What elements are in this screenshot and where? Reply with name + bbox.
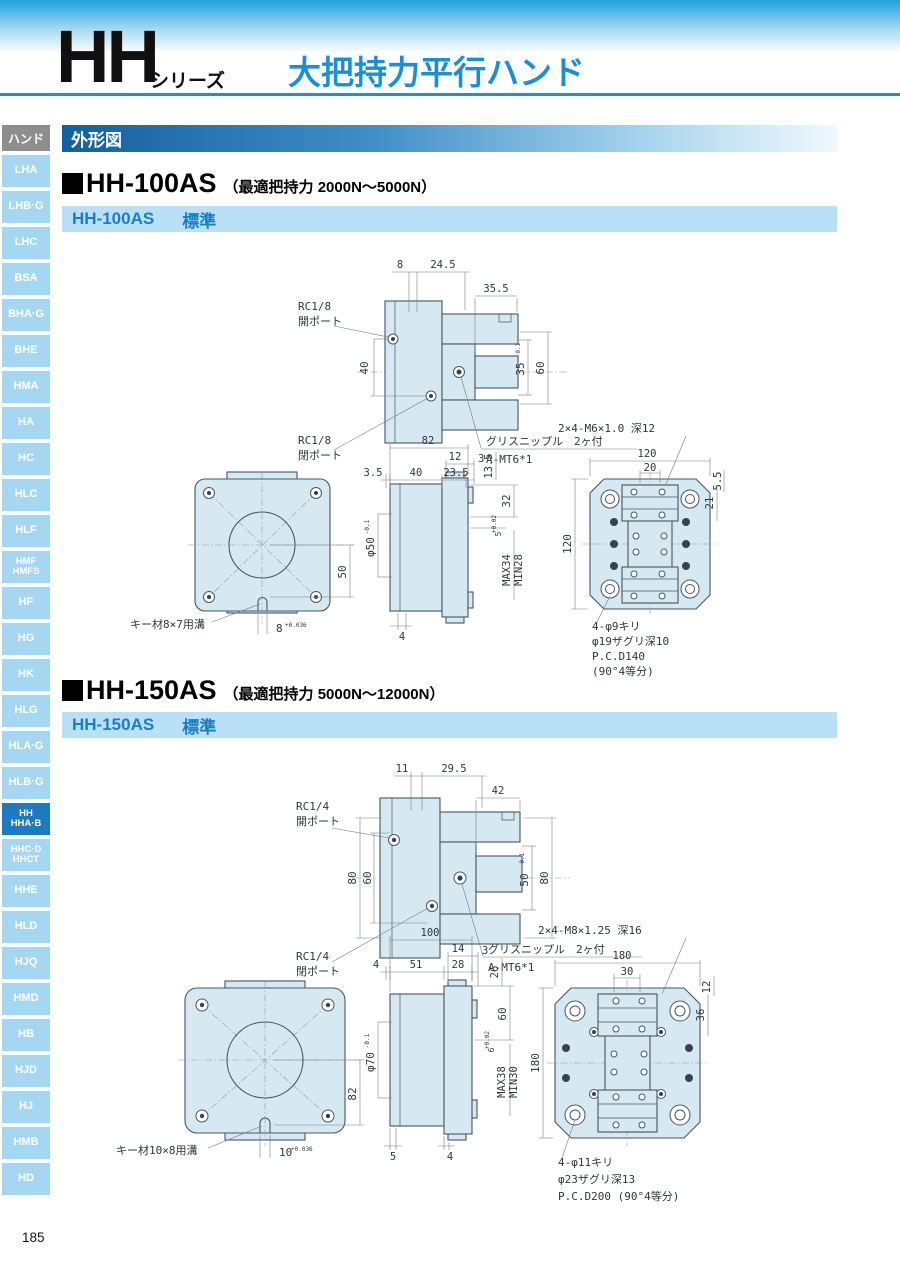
sidebar-item-bhe[interactable]: BHE [2, 335, 50, 367]
dim-label: 80 [538, 871, 551, 884]
dim-label: 24.5 [430, 259, 455, 271]
series-suffix: シリーズ [150, 66, 225, 93]
port-label: RC1/4 [296, 800, 329, 813]
header-rule [0, 93, 900, 96]
hh150as-outline-drawing: 11 29.5 42 80 60 50 -0.1 80 RC1/4 開ポート R… [62, 748, 900, 1223]
sidebar-item-hla·g[interactable]: HLA·G [2, 731, 50, 763]
dim-tolerance: +0.02 [491, 515, 498, 533]
dim-label: 4 [399, 631, 405, 643]
sidebar-item-hj[interactable]: HJ [2, 1091, 50, 1123]
sidebar-item-hhe[interactable]: HHE [2, 875, 50, 907]
sidebar-item-hh[interactable]: HHHHA·B [2, 803, 50, 835]
dim-label: 120 [638, 448, 657, 460]
sidebar-item-hmd[interactable]: HMD [2, 983, 50, 1015]
page-number: 185 [22, 1230, 45, 1245]
sidebar-item-hmb[interactable]: HMB [2, 1127, 50, 1159]
dim-label: 3.5 [364, 467, 383, 479]
product-heading-hh150as: HH-150AS （最適把持力 5000N〜12000N） [62, 675, 444, 706]
type-label: 標準 [182, 207, 216, 232]
dim-label: 29.5 [441, 763, 466, 775]
sidebar-item-hf[interactable]: HF [2, 587, 50, 619]
dim-tolerance: -0.1 [364, 519, 371, 534]
dim-label: 14 [452, 943, 465, 955]
dim-label: 60 [496, 1007, 509, 1020]
sidebar-item-hjq[interactable]: HJQ [2, 947, 50, 979]
dim-label: 26 [489, 966, 501, 979]
dim-label: 40 [358, 361, 371, 374]
sidebar-item-hlc[interactable]: HLC [2, 479, 50, 511]
dim-label: 12 [701, 981, 713, 994]
grease-nipple-label: グリスニップル 2ヶ付 [486, 434, 603, 448]
hole-note: P.C.D140 [592, 650, 645, 663]
hole-note: φ23ザグリ深13 [558, 1172, 635, 1186]
sidebar-item-bsa[interactable]: BSA [2, 263, 50, 295]
hole-note: 4-φ9キリ [592, 620, 641, 633]
sidebar-item-hd[interactable]: HD [2, 1163, 50, 1195]
keyway-label: キー材10×8用溝 [116, 1143, 198, 1157]
dim-label: 4 [373, 959, 379, 971]
dim-label: φ50 [364, 537, 377, 557]
sidebar: ハンド LHALHB·GLHCBSABHA·GBHEHMAHAHCHLCHLFH… [2, 125, 50, 1199]
sidebar-item-hlg[interactable]: HLG [2, 695, 50, 727]
hh100-face-view: 2×4-M6×1.0 深12 120 20 5.5 21 120 4-φ9キリ … [558, 422, 724, 678]
sidebar-header: ハンド [2, 125, 50, 151]
dim-label: MAX34 [501, 554, 513, 586]
dim-label: MIN30 [508, 1066, 520, 1098]
dim-tolerance: +0.02 [484, 1031, 491, 1049]
dim-label: MAX38 [496, 1066, 508, 1098]
dim-tolerance: +0.036 [285, 622, 307, 629]
model-bar-hh150as: HH-150AS 標準 [62, 712, 837, 738]
product-name: HH-100AS [86, 168, 217, 199]
dim-label: 20 [644, 462, 657, 474]
grease-nipple-label: グリスニップル 2ヶ付 [488, 942, 605, 956]
dim-label: 80 [346, 871, 359, 884]
dim-label: 50 [518, 873, 531, 886]
dim-label: 82 [422, 435, 435, 447]
dim-label: MIN28 [513, 554, 525, 586]
dim-label: 8 [276, 622, 283, 635]
hh100-flange-view: 50 キー材8×7用溝 8 +0.036 [130, 472, 354, 635]
type-label: 標準 [182, 713, 216, 738]
dim-tolerance: -0.1 [515, 342, 522, 357]
port-label: 閉ポート [298, 449, 342, 462]
dim-tolerance: +0.036 [291, 1146, 313, 1153]
hole-note: 4-φ11キリ [558, 1156, 613, 1169]
hh150-side-view: 11 29.5 42 80 60 50 -0.1 80 RC1/4 開ポート R… [296, 763, 642, 978]
dim-label: 28 [452, 959, 465, 971]
hole-note: (90°4等分) [592, 664, 654, 678]
sidebar-item-hg[interactable]: HG [2, 623, 50, 655]
dim-label: 32 [500, 494, 513, 507]
dim-label: 100 [421, 927, 440, 939]
dim-label: 13.5 [483, 453, 495, 478]
heading-square [62, 680, 83, 701]
dim-label: 8 [397, 259, 403, 271]
model-label: HH-150AS [72, 715, 154, 735]
sidebar-item-lhb·g[interactable]: LHB·G [2, 191, 50, 223]
dim-label: 5.5 [712, 472, 724, 491]
hh100as-outline-drawing: 8 24.5 35.5 40 35 -0.1 60 RC1/8 開ポート RC1… [62, 244, 900, 694]
heading-square [62, 173, 83, 194]
dim-label: 82 [346, 1087, 359, 1100]
sidebar-list: LHALHB·GLHCBSABHA·GBHEHMAHAHCHLCHLFHMFHM… [2, 155, 50, 1195]
port-label: RC1/4 [296, 950, 329, 963]
sidebar-item-hlb·g[interactable]: HLB·G [2, 767, 50, 799]
dim-label: 23.5 [443, 467, 468, 479]
sidebar-item-hlf[interactable]: HLF [2, 515, 50, 547]
sidebar-item-hk[interactable]: HK [2, 659, 50, 691]
dim-label: 40 [410, 467, 423, 479]
sidebar-item-ha[interactable]: HA [2, 407, 50, 439]
hole-note: φ19ザグリ深10 [592, 634, 669, 648]
dim-label: 5 [390, 1151, 396, 1163]
sidebar-item-hma[interactable]: HMA [2, 371, 50, 403]
dim-label: 35.5 [483, 283, 508, 295]
catalog-page: HH シリーズ 大把持力平行ハンド ハンド LHALHB·GLHCBSABHA·… [0, 0, 900, 1273]
dim-label: 180 [613, 950, 632, 962]
port-label: 閉ポート [296, 965, 340, 978]
sidebar-item-hc[interactable]: HC [2, 443, 50, 475]
hole-note: P.C.D200 (90°4等分) [558, 1189, 679, 1203]
dim-tolerance: -0.1 [519, 852, 526, 867]
sidebar-item-bha·g[interactable]: BHA·G [2, 299, 50, 331]
sidebar-item-hjd[interactable]: HJD [2, 1055, 50, 1087]
hh150-face-view: 2×4-M8×1.25 深16 180 30 12 36 180 4-φ11キリ… [529, 924, 714, 1203]
dim-label: 36 [695, 1009, 707, 1022]
model-label: HH-100AS [72, 209, 154, 229]
port-label: RC1/8 [298, 300, 331, 313]
port-label: RC1/8 [298, 434, 331, 447]
dim-tolerance: -0.1 [364, 1033, 371, 1048]
grip-force-note: （最適把持力 2000N〜5000N） [224, 176, 437, 197]
dim-label: 50 [336, 565, 349, 578]
dim-label: 35 [514, 362, 527, 375]
dim-label: 180 [529, 1053, 542, 1073]
sidebar-item-hld[interactable]: HLD [2, 911, 50, 943]
hh100-elevation-view: 82 12 3 3.5 40 23.5 13.5 32 5 +0.02 MAX3… [364, 435, 525, 643]
product-name: HH-150AS [86, 675, 217, 706]
section-bar-outline: 外形図 [62, 125, 837, 152]
dim-label: 3 [482, 945, 488, 957]
dim-label: 42 [492, 785, 505, 797]
dim-label: 120 [561, 534, 574, 554]
grip-force-note: （最適把持力 5000N〜12000N） [224, 683, 445, 704]
sidebar-item-hb[interactable]: HB [2, 1019, 50, 1051]
dim-label: φ70 [364, 1052, 377, 1072]
dim-label: 60 [361, 871, 374, 884]
dim-label: 30 [621, 966, 634, 978]
page-title: 大把持力平行ハンド [288, 46, 585, 94]
dim-label: 4 [447, 1151, 453, 1163]
keyway-label: キー材8×7用溝 [130, 617, 205, 631]
series-logo: HH [56, 14, 157, 99]
product-heading-hh100as: HH-100AS （最適把持力 2000N〜5000N） [62, 168, 436, 199]
sidebar-item-lha[interactable]: LHA [2, 155, 50, 187]
dim-label: 21 [704, 497, 716, 510]
dim-label: 11 [396, 763, 409, 775]
model-bar-hh100as: HH-100AS 標準 [62, 206, 837, 232]
dim-label: 12 [449, 451, 462, 463]
tap-label: 2×4-M8×1.25 深16 [538, 924, 642, 937]
hh150-flange-view: 82 キー材10×8用溝 10 +0.036 [116, 981, 364, 1159]
dim-label: 51 [410, 959, 423, 971]
sidebar-item-hhc·d[interactable]: HHC·DHHCT [2, 839, 50, 871]
sidebar-item-hmf[interactable]: HMFHMFS [2, 551, 50, 583]
dim-label: 60 [534, 361, 547, 374]
port-label: 開ポート [298, 315, 342, 328]
tap-label: 2×4-M6×1.0 深12 [558, 422, 655, 435]
sidebar-item-lhc[interactable]: LHC [2, 227, 50, 259]
port-label: 開ポート [296, 815, 340, 828]
